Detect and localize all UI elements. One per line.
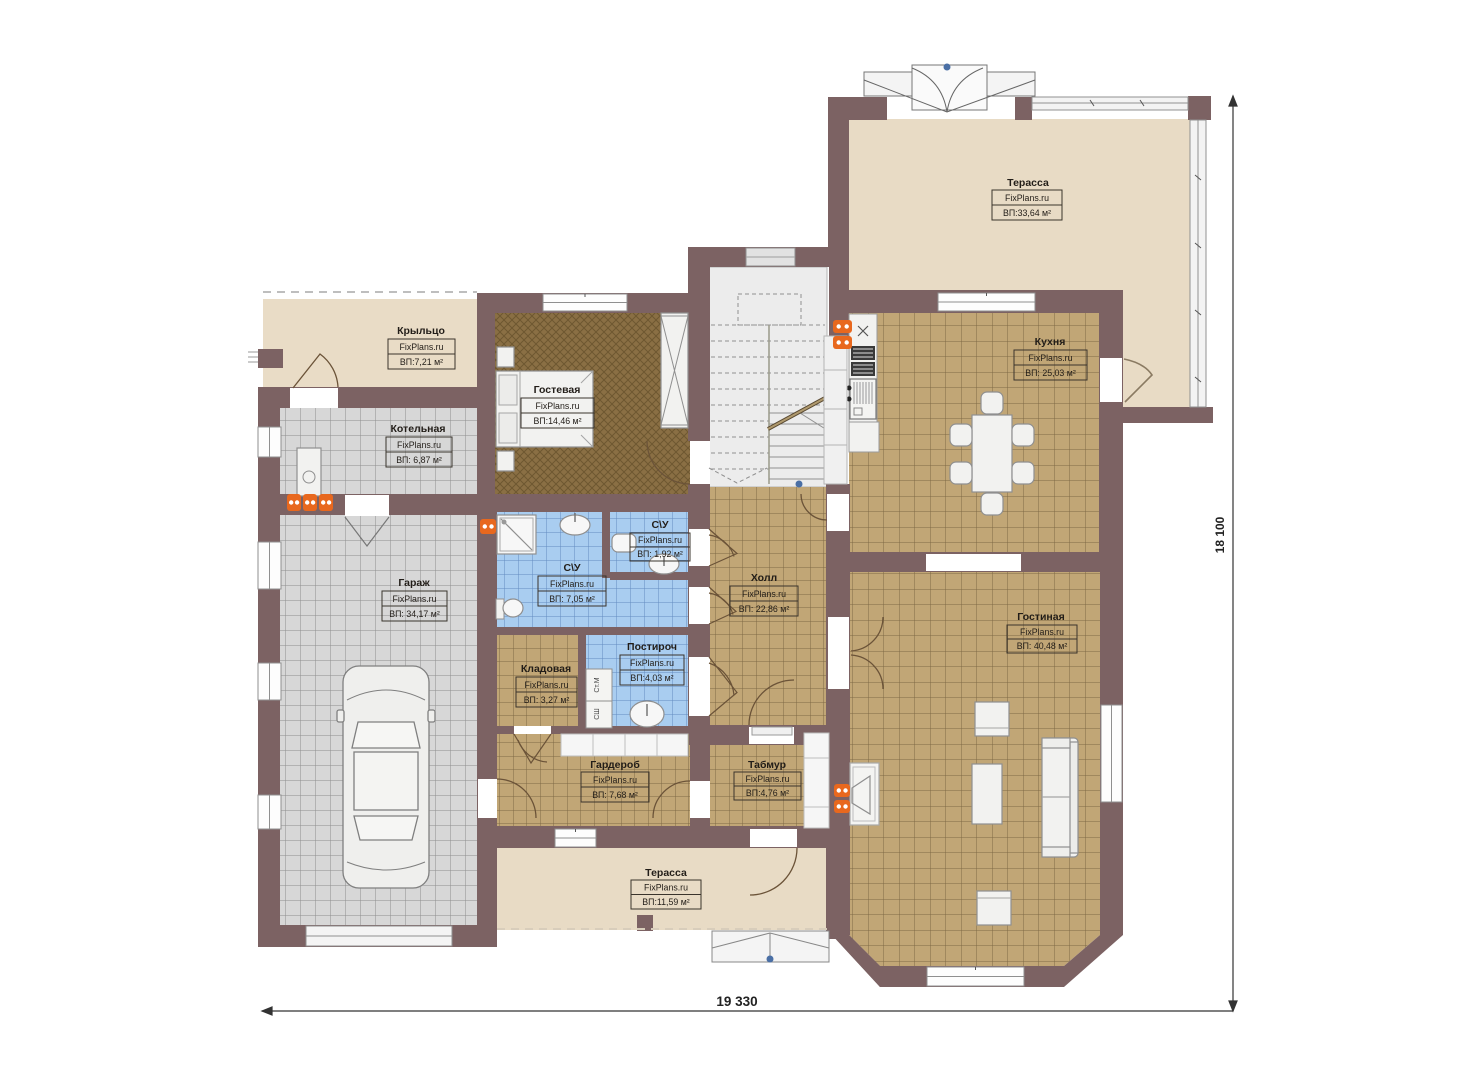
- svg-text:18 100: 18 100: [1213, 516, 1227, 553]
- svg-text:FixPlans.ru: FixPlans.ru: [1020, 627, 1064, 637]
- svg-text:Котельная: Котельная: [391, 423, 446, 435]
- svg-text:Постироч: Постироч: [627, 641, 677, 653]
- svg-text:ВП: 7,68 м²: ВП: 7,68 м²: [592, 790, 638, 800]
- svg-text:Ст.М: Ст.М: [594, 677, 601, 692]
- svg-text:ВП:14,46 м²: ВП:14,46 м²: [533, 416, 581, 426]
- svg-text:С\У: С\У: [563, 562, 581, 574]
- svg-text:FixPlans.ru: FixPlans.ru: [525, 680, 569, 690]
- svg-text:ВП:11,59 м²: ВП:11,59 м²: [642, 897, 689, 907]
- svg-text:Табмур: Табмур: [748, 759, 786, 771]
- svg-text:Терасса: Терасса: [645, 867, 687, 879]
- svg-text:FixPlans.ru: FixPlans.ru: [550, 579, 594, 589]
- svg-text:Холл: Холл: [751, 572, 777, 584]
- svg-text:FixPlans.ru: FixPlans.ru: [397, 440, 441, 450]
- svg-text:FixPlans.ru: FixPlans.ru: [1005, 193, 1049, 203]
- svg-text:19 330: 19 330: [716, 994, 757, 1009]
- svg-text:ВП: 34,17 м²: ВП: 34,17 м²: [389, 609, 440, 619]
- svg-text:Гардероб: Гардероб: [590, 759, 640, 771]
- svg-text:FixPlans.ru: FixPlans.ru: [742, 589, 786, 599]
- svg-text:FixPlans.ru: FixPlans.ru: [593, 775, 637, 785]
- svg-text:ВП:7,21 м²: ВП:7,21 м²: [400, 357, 443, 367]
- svg-text:ВП:4,03 м²: ВП:4,03 м²: [630, 673, 673, 683]
- svg-text:ВП: 22,86 м²: ВП: 22,86 м²: [739, 604, 790, 614]
- svg-text:FixPlans.ru: FixPlans.ru: [630, 658, 674, 668]
- svg-text:ВП:33,64 м²: ВП:33,64 м²: [1003, 208, 1051, 218]
- svg-text:ВП: 7,05 м²: ВП: 7,05 м²: [549, 594, 595, 604]
- svg-text:ВП: 3,27 м²: ВП: 3,27 м²: [524, 695, 570, 705]
- svg-text:FixPlans.ru: FixPlans.ru: [746, 774, 790, 784]
- svg-text:Кухня: Кухня: [1035, 336, 1066, 348]
- svg-text:Гостевая: Гостевая: [534, 384, 581, 396]
- svg-text:FixPlans.ru: FixPlans.ru: [638, 535, 682, 545]
- svg-text:Кладовая: Кладовая: [521, 663, 571, 675]
- svg-text:FixPlans.ru: FixPlans.ru: [1029, 353, 1073, 363]
- svg-text:С\У: С\У: [651, 519, 669, 531]
- svg-text:Терасса: Терасса: [1007, 177, 1049, 189]
- svg-text:FixPlans.ru: FixPlans.ru: [400, 342, 444, 352]
- svg-text:FixPlans.ru: FixPlans.ru: [536, 401, 580, 411]
- svg-text:СШ: СШ: [594, 708, 601, 719]
- svg-text:ВП: 40,48 м²: ВП: 40,48 м²: [1017, 641, 1068, 651]
- svg-text:ВП: 25,03 м²: ВП: 25,03 м²: [1025, 368, 1076, 378]
- svg-text:Гостиная: Гостиная: [1017, 611, 1064, 623]
- svg-text:ВП: 1,92 м²: ВП: 1,92 м²: [637, 549, 683, 559]
- svg-text:ВП:4,76 м²: ВП:4,76 м²: [746, 788, 789, 798]
- svg-text:ВП: 6,87 м²: ВП: 6,87 м²: [396, 455, 442, 465]
- svg-text:Крыльцо: Крыльцо: [397, 325, 445, 337]
- svg-text:FixPlans.ru: FixPlans.ru: [393, 594, 437, 604]
- svg-text:Гараж: Гараж: [398, 577, 430, 589]
- svg-text:FixPlans.ru: FixPlans.ru: [644, 883, 688, 893]
